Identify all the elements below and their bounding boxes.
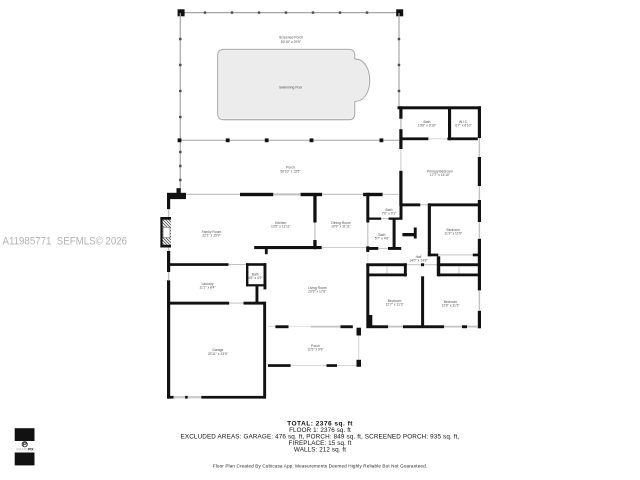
svg-text:Screened Porch: Screened Porch bbox=[279, 35, 303, 39]
svg-text:17'7" x 14'10": 17'7" x 14'10" bbox=[430, 173, 451, 177]
svg-text:5'7" x 4'6": 5'7" x 4'6" bbox=[375, 237, 390, 241]
svg-text:A11985771 SEFMLS© 2026: A11985771 SEFMLS© 2026 bbox=[3, 235, 128, 247]
svg-text:11'5" x 9'9": 11'5" x 9'9" bbox=[307, 348, 324, 352]
svg-text:13'5" x 11'11": 13'5" x 11'11" bbox=[271, 224, 292, 228]
svg-text:50'10" x 13'5": 50'10" x 13'5" bbox=[280, 170, 301, 174]
svg-text:11'1" x 8'4": 11'1" x 8'4" bbox=[199, 286, 216, 290]
svg-text:4'5" x 4'9": 4'5" x 4'9" bbox=[248, 276, 263, 280]
svg-text:50'10" x 29'5": 50'10" x 29'5" bbox=[281, 40, 302, 44]
svg-text:14'0" x 14'8": 14'0" x 14'8" bbox=[409, 259, 428, 263]
svg-text:SMARTPIX: SMARTPIX bbox=[16, 448, 34, 452]
svg-text:Swimming Pool: Swimming Pool bbox=[279, 85, 302, 89]
svg-text:12'8" x 11'3": 12'8" x 11'3" bbox=[441, 304, 460, 308]
svg-text:22'1" x 15'9": 22'1" x 15'9" bbox=[202, 234, 221, 238]
svg-text:11'3" x 11'5": 11'3" x 11'5" bbox=[444, 232, 463, 236]
svg-text:23'3" x 17'8": 23'3" x 17'8" bbox=[308, 289, 327, 293]
svg-text:6'7" x 6'10": 6'7" x 6'10" bbox=[455, 124, 472, 128]
svg-text:Floor Plan Created By Cubicasa: Floor Plan Created By Cubicasa App. Meas… bbox=[213, 463, 427, 468]
svg-text:10'9" x 11'11": 10'9" x 11'11" bbox=[331, 224, 352, 228]
svg-text:10'8" x 6'10": 10'8" x 6'10" bbox=[418, 124, 437, 128]
svg-text:12'7" x 11'3": 12'7" x 11'3" bbox=[386, 303, 405, 307]
svg-text:WALLS: 212 sq. ft: WALLS: 212 sq. ft bbox=[294, 446, 346, 453]
svg-text:23'11" x 23'9": 23'11" x 23'9" bbox=[208, 352, 229, 356]
svg-text:7'6" x 9'1": 7'6" x 9'1" bbox=[382, 212, 397, 216]
